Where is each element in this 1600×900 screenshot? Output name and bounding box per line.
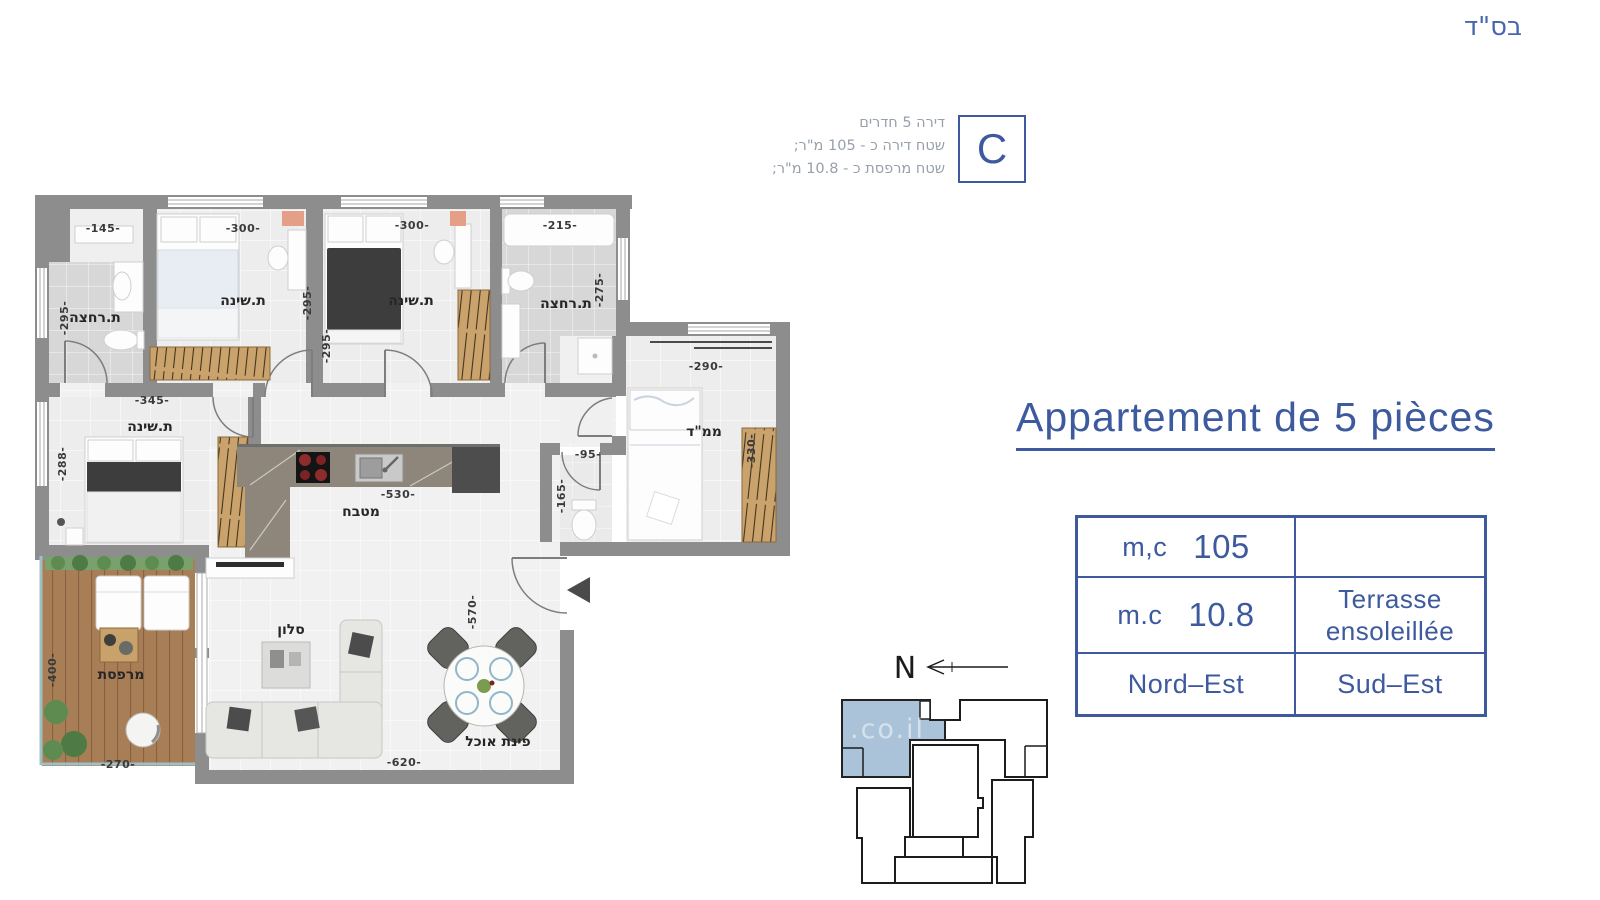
floor-plan: -145- -300- -300- -215- -295- -295- -295…: [0, 0, 810, 800]
unit-letter-box: C: [958, 115, 1026, 183]
toilet-room-fixture: [572, 500, 596, 540]
svg-text:סלון: סלון: [277, 622, 305, 638]
svg-text:-275-: -275-: [593, 273, 606, 308]
spec-orientation-right: Sud–Est: [1295, 653, 1485, 715]
svg-text:ת.שינה: ת.שינה: [220, 293, 266, 309]
svg-text:-270-: -270-: [101, 758, 136, 771]
svg-text:-620-: -620-: [387, 756, 422, 769]
north-label: N: [894, 651, 916, 686]
page-title: Appartement de 5 pièces: [1016, 394, 1495, 451]
svg-text:ממ"ד: ממ"ד: [686, 424, 722, 440]
svg-text:-300-: -300-: [395, 219, 430, 232]
north-arrow: N: [894, 651, 1008, 686]
spec-terrace-value: 10.8: [1188, 596, 1254, 634]
spec-area-cell: m,c 105: [1077, 517, 1295, 577]
svg-text:-400-: -400-: [46, 653, 59, 688]
svg-text:-295-: -295-: [301, 286, 314, 321]
svg-text:ת.רחצה: ת.רחצה: [69, 310, 121, 326]
bsd-text: בס"ד: [1464, 12, 1522, 42]
building-outline: .co.il: [842, 700, 1047, 883]
svg-text:מרפסת: מרפסת: [98, 667, 145, 683]
svg-text:ת.רחצה: ת.רחצה: [540, 296, 592, 312]
svg-text:-95-: -95-: [575, 448, 601, 461]
svg-text:מטבח: מטבח: [342, 504, 380, 520]
svg-text:-145-: -145-: [86, 222, 121, 235]
spec-orientation-left: Nord–Est: [1077, 653, 1295, 715]
svg-text:פינת אוכל: פינת אוכל: [465, 734, 531, 750]
spec-terrace-label: m.c: [1117, 600, 1162, 631]
svg-text:-215-: -215-: [543, 219, 578, 232]
svg-text:-300-: -300-: [226, 222, 261, 235]
entrance-arrow: [567, 577, 590, 603]
spec-area-label: m,c: [1122, 532, 1167, 563]
svg-text:-345-: -345-: [135, 394, 170, 407]
svg-text:ת.שינה: ת.שינה: [127, 419, 173, 435]
svg-text:-330-: -330-: [745, 434, 758, 469]
spec-empty-cell: [1295, 517, 1485, 577]
spec-terrace-desc-cell: Terrasse ensoleillée: [1295, 577, 1485, 653]
svg-text:-165-: -165-: [555, 479, 568, 514]
mamad-furniture: [628, 388, 702, 540]
spec-area-value: 105: [1193, 528, 1250, 566]
svg-text:-295-: -295-: [320, 329, 333, 364]
svg-text:-570-: -570-: [466, 595, 479, 630]
svg-text:-530-: -530-: [381, 488, 416, 501]
spec-terrace-cell: m.c 10.8: [1077, 577, 1295, 653]
page: בס"ד דירה 5 חדרים שטח דירה כ - 105 מ"ר; …: [0, 0, 1600, 900]
svg-text:-288-: -288-: [56, 447, 69, 482]
spec-table: m,c 105 m.c 10.8 Terrasse ensoleillée No…: [1075, 515, 1487, 717]
svg-text:ת.שינה: ת.שינה: [388, 293, 434, 309]
svg-text:-290-: -290-: [689, 360, 724, 373]
watermark-text: .co.il: [850, 714, 925, 745]
key-plan: N .co.il: [818, 638, 1068, 893]
